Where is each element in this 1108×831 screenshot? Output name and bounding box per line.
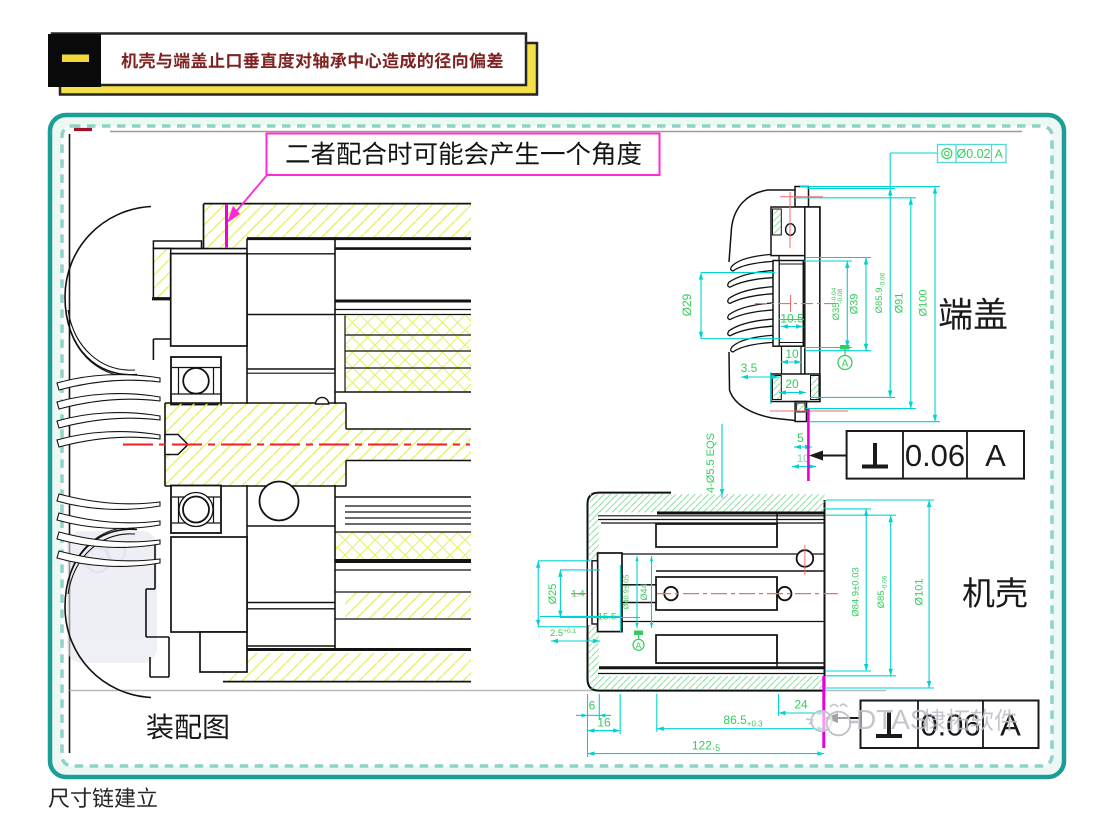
svg-text:A: A: [995, 147, 1003, 161]
svg-text:Ø84.9±0.03: Ø84.9±0.03: [851, 567, 862, 617]
svg-text:Ø100: Ø100: [918, 290, 930, 317]
svg-text:Ø101: Ø101: [914, 579, 926, 606]
svg-text:A: A: [1000, 708, 1021, 743]
svg-text:A: A: [985, 438, 1006, 473]
svg-text:Ø29: Ø29: [680, 293, 694, 316]
svg-text:Ø44: Ø44: [639, 583, 649, 600]
svg-text:6: 6: [589, 699, 596, 713]
svg-text:DTAS: DTAS: [856, 704, 929, 735]
svg-text:24: 24: [794, 698, 808, 712]
svg-text:10: 10: [785, 347, 799, 361]
svg-text:Ø91: Ø91: [894, 293, 906, 314]
svg-text:4-Ø5.5 EQS: 4-Ø5.5 EQS: [705, 433, 717, 493]
svg-text:Ø0.02: Ø0.02: [956, 147, 990, 161]
svg-text:15.5: 15.5: [598, 612, 617, 623]
svg-text:A: A: [842, 359, 849, 370]
svg-text:Ø39: Ø39: [849, 294, 861, 315]
svg-text:16: 16: [597, 716, 611, 730]
svg-text:Ø40.9±.05: Ø40.9±.05: [622, 575, 631, 610]
svg-text:20: 20: [785, 377, 799, 391]
svg-text:1.4: 1.4: [571, 589, 584, 600]
svg-text:5: 5: [797, 431, 804, 445]
svg-text:A: A: [636, 640, 642, 650]
svg-text:3.5: 3.5: [741, 361, 758, 375]
svg-text:Ø25: Ø25: [547, 584, 559, 605]
svg-text:10.5: 10.5: [780, 312, 804, 326]
svg-text:0.06: 0.06: [905, 438, 965, 473]
